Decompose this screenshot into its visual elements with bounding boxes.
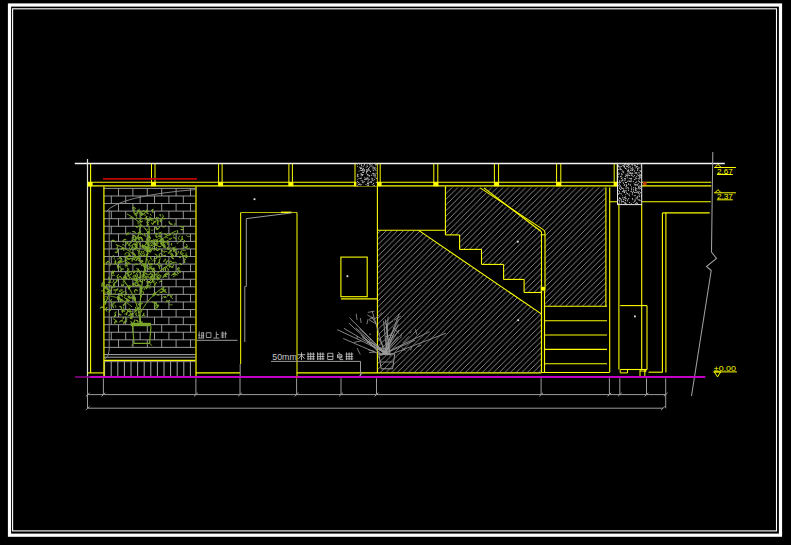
- svg-text:50mm: 50mm: [272, 351, 297, 362]
